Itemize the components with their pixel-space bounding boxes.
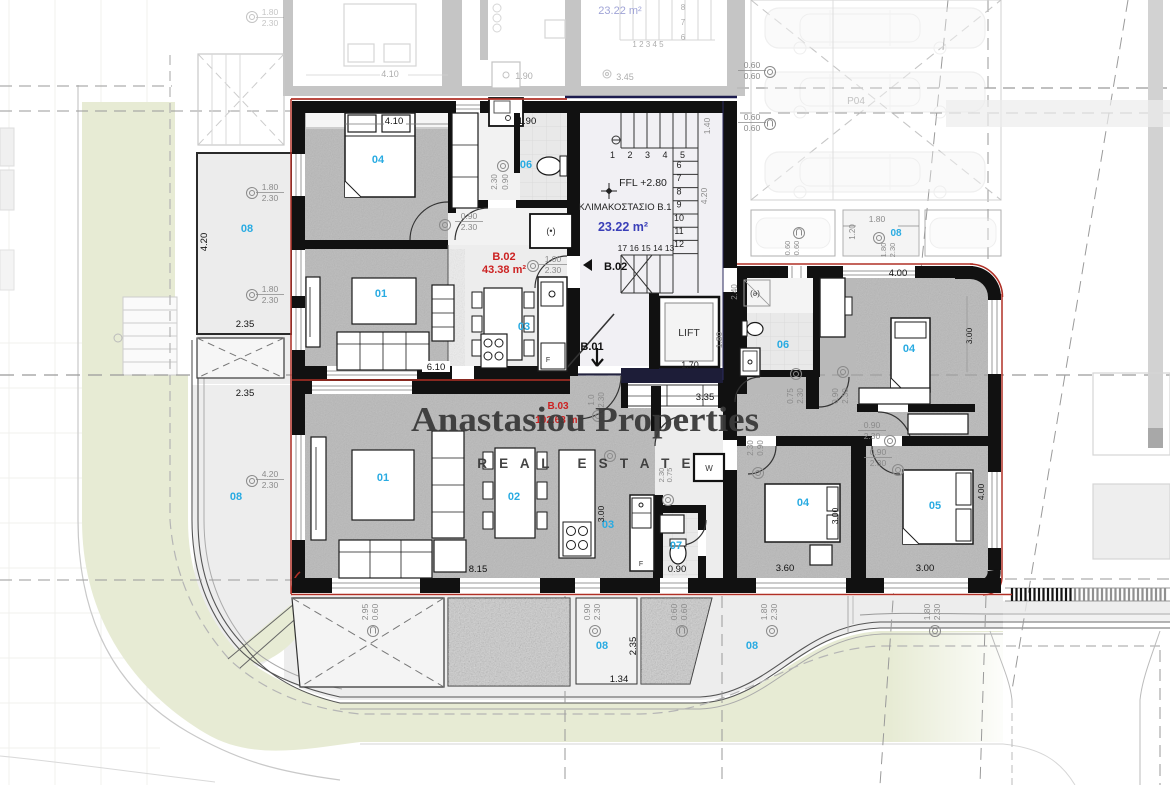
svg-text:08: 08 (596, 640, 608, 652)
svg-text:2.35: 2.35 (236, 319, 255, 330)
svg-text:4.20: 4.20 (699, 187, 709, 204)
svg-text:0.90: 0.90 (461, 211, 478, 221)
svg-text:05: 05 (929, 500, 941, 512)
svg-text:ΚΛΙΜΑΚΟΣΤΑΣΙΟ B.1: ΚΛΙΜΑΚΟΣΤΑΣΙΟ B.1 (578, 202, 671, 213)
svg-text:2.30: 2.30 (796, 388, 805, 404)
svg-text:0.60: 0.60 (679, 603, 689, 620)
svg-text:3.45: 3.45 (616, 72, 634, 82)
svg-text:03: 03 (518, 321, 530, 333)
svg-text:0.90: 0.90 (582, 603, 592, 620)
svg-text:0.60: 0.60 (370, 603, 380, 620)
svg-text:08: 08 (241, 223, 253, 235)
svg-text:4.00: 4.00 (889, 268, 908, 279)
svg-text:08: 08 (230, 491, 242, 503)
svg-text:11: 11 (674, 226, 683, 236)
svg-text:04: 04 (797, 497, 810, 509)
svg-text:0.90: 0.90 (831, 388, 840, 404)
svg-text:1.80: 1.80 (759, 603, 769, 620)
svg-text:2.30: 2.30 (864, 431, 881, 441)
svg-text:0.60: 0.60 (792, 241, 801, 256)
svg-text:3.00: 3.00 (830, 507, 840, 524)
svg-text:0.90: 0.90 (870, 447, 887, 457)
svg-text:1.90: 1.90 (518, 116, 537, 127)
svg-text:2.30: 2.30 (870, 458, 887, 468)
svg-text:10: 10 (674, 213, 684, 223)
svg-text:02: 02 (508, 491, 520, 503)
svg-text:1.80: 1.80 (922, 603, 932, 620)
svg-text:23.22 m²: 23.22 m² (598, 220, 648, 234)
svg-text:0.60: 0.60 (744, 60, 761, 70)
svg-text:1 2 3 4 5: 1 2 3 4 5 (632, 40, 664, 49)
svg-text:3.00: 3.00 (964, 327, 974, 344)
svg-text:4.20: 4.20 (262, 469, 279, 479)
svg-text:1.80: 1.80 (879, 243, 888, 258)
svg-text:0.60: 0.60 (783, 241, 792, 256)
svg-text:2.30: 2.30 (262, 480, 279, 490)
svg-text:2.30: 2.30 (262, 295, 279, 305)
svg-text:6: 6 (676, 160, 681, 170)
svg-text:2.30: 2.30 (769, 603, 779, 620)
svg-text:1.40: 1.40 (702, 117, 712, 134)
svg-text:0.75: 0.75 (786, 388, 795, 404)
svg-text:2.30: 2.30 (545, 265, 562, 275)
svg-text:1.90: 1.90 (515, 71, 533, 81)
svg-text:17 16 15 14 13: 17 16 15 14 13 (618, 243, 675, 253)
svg-text:1.80: 1.80 (262, 182, 279, 192)
svg-text:1.80: 1.80 (869, 214, 886, 224)
svg-text:1.80: 1.80 (761, 268, 780, 279)
svg-text:1.70: 1.70 (681, 360, 699, 370)
svg-text:3.60: 3.60 (776, 563, 795, 574)
svg-text:2.35: 2.35 (628, 637, 639, 656)
svg-text:1.00: 1.00 (545, 254, 562, 264)
svg-text:2.30: 2.30 (461, 222, 478, 232)
svg-text:7: 7 (681, 18, 686, 27)
svg-text:01: 01 (375, 288, 387, 300)
svg-text:3.00: 3.00 (596, 505, 606, 522)
svg-text:7: 7 (676, 173, 681, 183)
svg-text:W: W (705, 464, 713, 473)
svg-text:08: 08 (890, 228, 902, 239)
svg-text:2.40: 2.40 (730, 284, 739, 300)
svg-text:0.60: 0.60 (744, 112, 761, 122)
svg-text:0.90: 0.90 (864, 420, 881, 430)
svg-text:1.80: 1.80 (714, 331, 724, 348)
svg-text:4.00: 4.00 (976, 483, 986, 500)
svg-text:8: 8 (676, 186, 681, 196)
svg-text:0.60: 0.60 (744, 71, 761, 81)
svg-text:2.30: 2.30 (262, 18, 279, 28)
svg-text:3.00: 3.00 (916, 563, 935, 574)
svg-text:2.95: 2.95 (360, 603, 370, 620)
svg-text:01: 01 (377, 472, 389, 484)
svg-text:F: F (639, 561, 643, 568)
svg-text:(ə): (ə) (750, 289, 760, 298)
svg-text:23.22 m²: 23.22 m² (598, 5, 642, 17)
svg-text:FFL +2.80: FFL +2.80 (619, 177, 667, 189)
svg-text:Anastasiou Properties: Anastasiou Properties (411, 400, 759, 439)
svg-text:1.34: 1.34 (610, 674, 629, 685)
svg-text:4.10: 4.10 (385, 116, 404, 127)
svg-text:08: 08 (746, 640, 758, 652)
svg-text:2.35: 2.35 (236, 388, 255, 399)
svg-text:0.90: 0.90 (668, 564, 687, 575)
svg-text:07: 07 (670, 540, 682, 552)
svg-text:8.15: 8.15 (469, 564, 488, 575)
svg-text:6.10: 6.10 (427, 362, 446, 373)
svg-text:06: 06 (520, 159, 532, 171)
svg-text:0.90: 0.90 (501, 174, 510, 190)
svg-text:R E A L E S T A T E: R E A L E S T A T E (477, 456, 694, 471)
svg-text:2.30: 2.30 (490, 174, 499, 190)
svg-text:1.80: 1.80 (262, 7, 279, 17)
svg-text:(•): (•) (546, 226, 555, 236)
svg-text:2.30: 2.30 (932, 603, 942, 620)
svg-text:0.90: 0.90 (756, 440, 765, 456)
svg-text:0.60: 0.60 (669, 603, 679, 620)
svg-text:6: 6 (681, 33, 686, 42)
svg-text:F: F (546, 357, 550, 364)
svg-text:2.30: 2.30 (841, 388, 850, 404)
svg-text:1.80: 1.80 (262, 284, 279, 294)
svg-text:12: 12 (674, 239, 684, 249)
svg-text:06: 06 (777, 339, 789, 351)
svg-text:2.30: 2.30 (888, 243, 897, 258)
svg-text:1.20: 1.20 (848, 224, 857, 240)
svg-text:2.30: 2.30 (592, 603, 602, 620)
svg-text:43.38 m²: 43.38 m² (482, 264, 526, 276)
svg-text:P04: P04 (847, 96, 865, 107)
svg-text:2.30: 2.30 (262, 193, 279, 203)
svg-text:9: 9 (676, 200, 681, 210)
svg-text:4.10: 4.10 (381, 69, 399, 79)
svg-text:1 2 3 4 5: 1 2 3 4 5 (610, 150, 690, 160)
svg-text:B.02: B.02 (492, 251, 515, 263)
svg-text:4.20: 4.20 (199, 233, 210, 252)
svg-text:B.01: B.01 (580, 341, 603, 353)
svg-text:0.60: 0.60 (744, 123, 761, 133)
svg-text:B.02: B.02 (604, 261, 627, 273)
svg-text:8: 8 (681, 3, 686, 12)
svg-text:LIFT: LIFT (678, 327, 700, 339)
svg-text:04: 04 (372, 154, 385, 166)
svg-text:2.30: 2.30 (746, 440, 755, 456)
svg-text:04: 04 (903, 343, 916, 355)
